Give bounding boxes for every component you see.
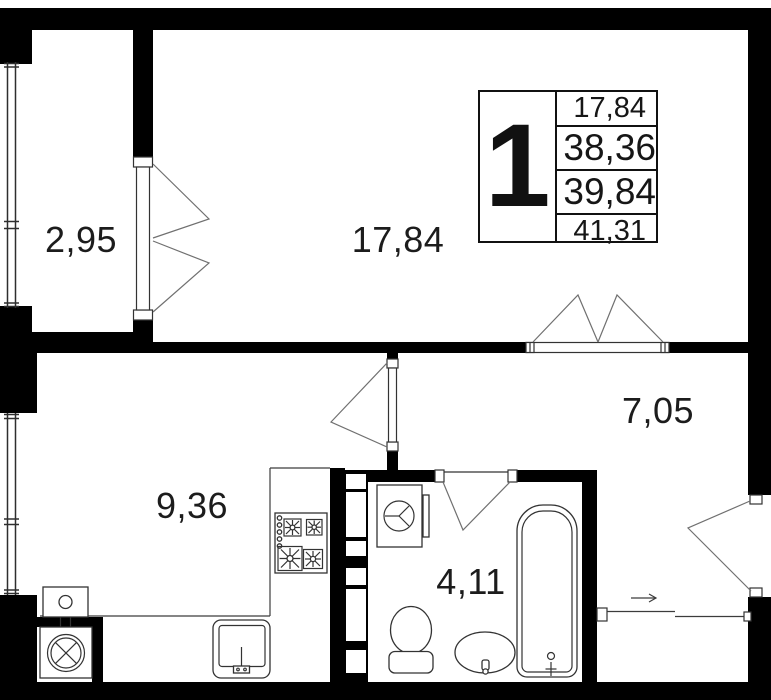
unit-area-living: 17,84 <box>557 92 656 125</box>
bathroom-door <box>435 470 517 530</box>
stove <box>275 513 327 573</box>
unit-area-with-balcony: 41,31 <box>557 213 656 248</box>
unit-area-total: 39,84 <box>557 169 656 213</box>
unit-rooms-count-cell: 1 <box>480 92 557 241</box>
unit-area-apartment: 38,36 <box>557 125 656 169</box>
hallway-partition-lines <box>597 608 751 621</box>
toilet <box>389 607 433 674</box>
unit-area-column: 17,84 38,36 39,84 41,31 <box>557 92 656 241</box>
washbasin <box>455 632 515 674</box>
entrance-door <box>688 495 771 597</box>
washing-machine-kitchen <box>40 627 92 678</box>
room-label-balcony: 2,95 <box>45 219 117 261</box>
kitchen-window <box>4 413 19 595</box>
kitchen-sink <box>213 620 270 678</box>
kitchen-door <box>331 359 398 451</box>
room-label-hallway: 7,05 <box>622 390 694 432</box>
entrance-arrow <box>631 594 656 602</box>
plumbing-shaft <box>342 470 368 682</box>
room-label-kitchen: 9,36 <box>156 485 228 527</box>
balcony-window <box>4 62 19 308</box>
unit-info-table: 1 17,84 38,36 39,84 41,31 <box>478 90 658 243</box>
unit-rooms-count: 1 <box>485 92 551 241</box>
balcony-door <box>134 157 210 320</box>
washing-machine-bathroom <box>377 485 429 547</box>
living-room-french-door <box>526 295 669 353</box>
room-label-living-room: 17,84 <box>352 219 445 261</box>
floor-plan: 2,95 17,84 9,36 7,05 4,11 1 17,84 38,36 … <box>0 0 771 700</box>
bathtub <box>517 505 577 677</box>
room-label-bathroom: 4,11 <box>436 561 505 603</box>
